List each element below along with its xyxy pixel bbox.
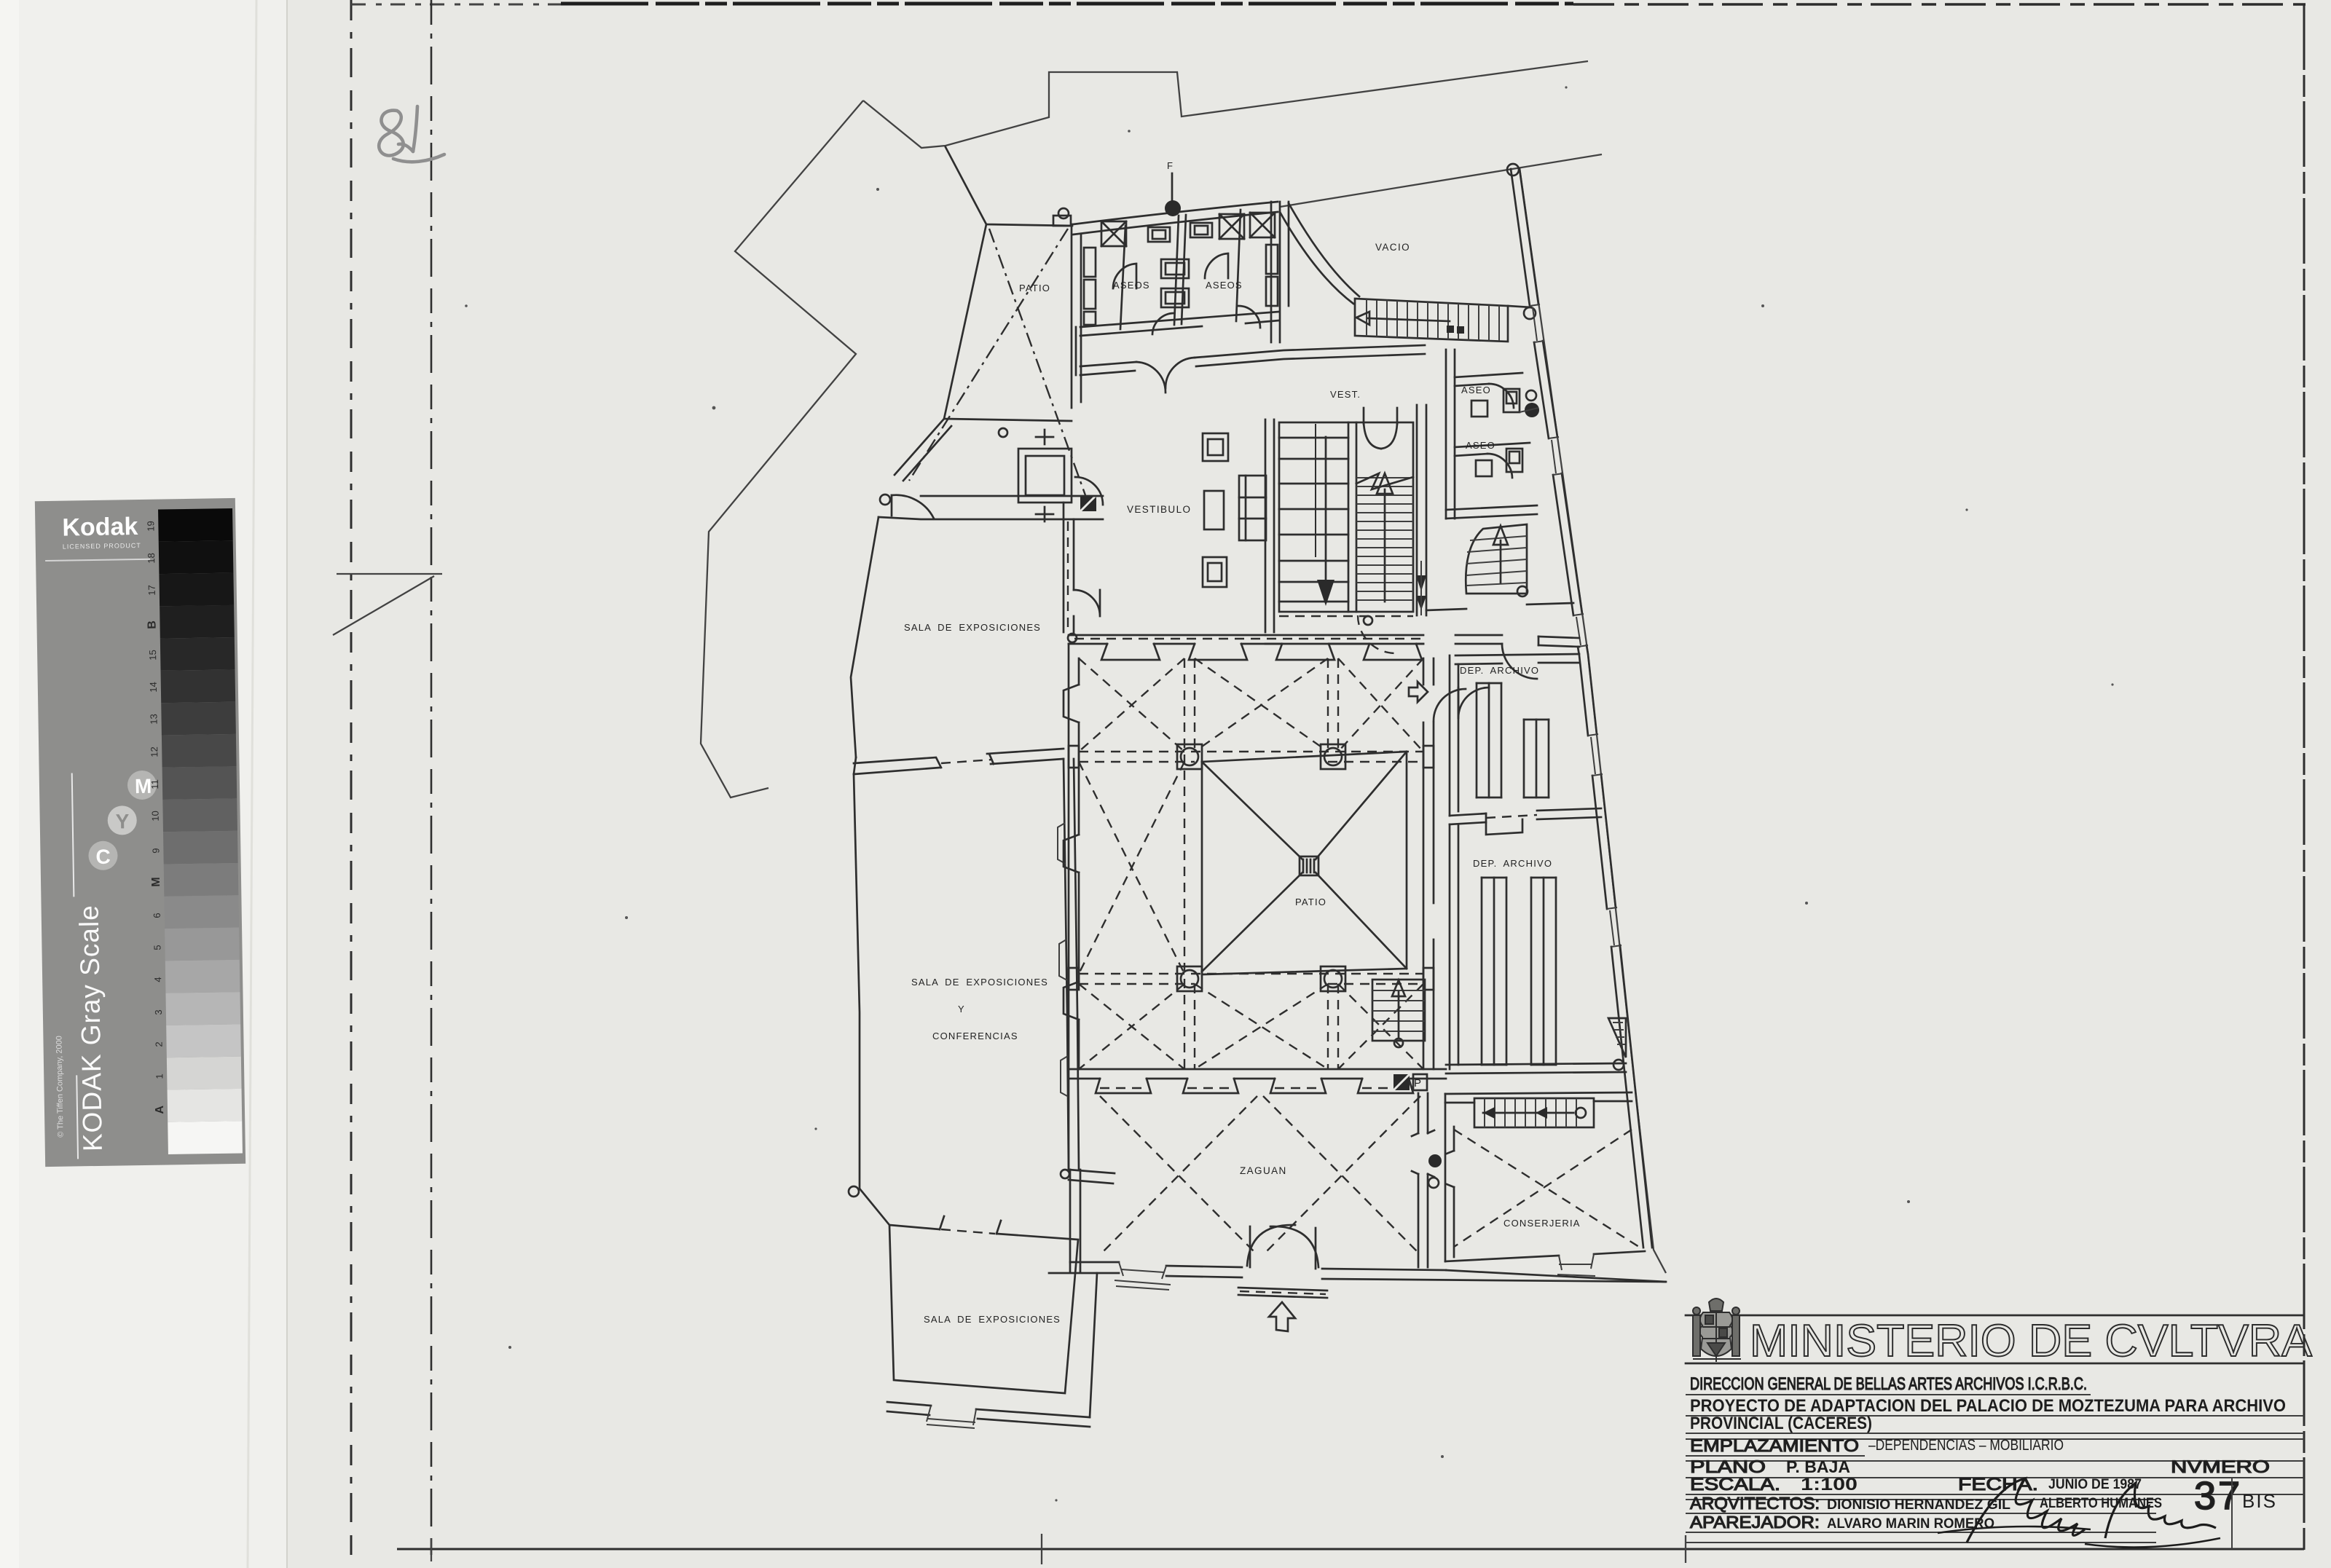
svg-text:2: 2 bbox=[154, 1041, 165, 1047]
svg-text:PLANO: PLANO bbox=[1690, 1457, 1766, 1477]
svg-text:SALA DE EXPOSICIONES: SALA DE EXPOSICIONES bbox=[911, 977, 1048, 988]
svg-text:Kodak: Kodak bbox=[62, 513, 138, 542]
svg-text:PATIO: PATIO bbox=[1019, 283, 1050, 293]
svg-text:A: A bbox=[154, 1105, 166, 1114]
svg-text:CONFERENCIAS: CONFERENCIAS bbox=[932, 1031, 1018, 1041]
svg-text:11: 11 bbox=[149, 779, 160, 789]
svg-text:37: 37 bbox=[2194, 1474, 2242, 1518]
svg-text:C: C bbox=[95, 846, 111, 868]
svg-text:CONSERJERIA: CONSERJERIA bbox=[1503, 1218, 1581, 1229]
svg-text:13: 13 bbox=[148, 714, 159, 725]
svg-text:18: 18 bbox=[146, 553, 157, 564]
svg-text:B: B bbox=[146, 620, 158, 629]
svg-text:Y: Y bbox=[116, 810, 130, 832]
svg-text:VESTIBULO: VESTIBULO bbox=[1127, 504, 1191, 515]
svg-text:–DEPENDENCIAS – MOBILIARIO: –DEPENDENCIAS – MOBILIARIO bbox=[1868, 1437, 2064, 1454]
svg-text:BIS: BIS bbox=[2242, 1490, 2277, 1512]
svg-text:DEP. ARCHIVO: DEP. ARCHIVO bbox=[1460, 665, 1539, 676]
svg-text:5: 5 bbox=[152, 945, 162, 950]
svg-text:F: F bbox=[1167, 160, 1174, 171]
svg-text:DIRECCION GENERAL DE BELLAS AR: DIRECCION GENERAL DE BELLAS ARTES ARCHIV… bbox=[1690, 1374, 2087, 1394]
svg-text:MINISTERIO DE CVLTVRA: MINISTERIO DE CVLTVRA bbox=[1750, 1316, 2313, 1366]
svg-text:EMPLAZAMIENTO: EMPLAZAMIENTO bbox=[1690, 1436, 1859, 1456]
svg-text:4: 4 bbox=[152, 977, 163, 982]
svg-text:3: 3 bbox=[153, 1009, 164, 1015]
svg-text:10: 10 bbox=[150, 811, 161, 822]
svg-text:ESCALA.: ESCALA. bbox=[1690, 1475, 1780, 1494]
svg-text:M: M bbox=[150, 877, 162, 887]
svg-text:1: 1 bbox=[154, 1073, 165, 1079]
svg-text:PROVINCIAL (CACERES): PROVINCIAL (CACERES) bbox=[1690, 1414, 1872, 1433]
svg-text:DEP. ARCHIVO: DEP. ARCHIVO bbox=[1473, 858, 1552, 869]
svg-text:APAREJADOR:: APAREJADOR: bbox=[1690, 1513, 1820, 1532]
svg-text:PATIO: PATIO bbox=[1295, 897, 1326, 907]
svg-text:17: 17 bbox=[146, 585, 157, 596]
svg-text:ASEOS: ASEOS bbox=[1113, 280, 1150, 291]
svg-text:VEST.: VEST. bbox=[1330, 389, 1361, 400]
svg-text:P. BAJA: P. BAJA bbox=[1786, 1457, 1850, 1476]
svg-text:ASEOS: ASEOS bbox=[1206, 280, 1243, 291]
svg-text:ASEO: ASEO bbox=[1461, 385, 1491, 395]
svg-text:PROYECTO DE ADAPTACION DEL PAL: PROYECTO DE ADAPTACION DEL PALACIO DE MO… bbox=[1690, 1396, 2286, 1416]
svg-text:6: 6 bbox=[152, 913, 162, 918]
svg-text:ZAGUAN: ZAGUAN bbox=[1240, 1165, 1287, 1176]
svg-text:1:100: 1:100 bbox=[1801, 1475, 1858, 1494]
svg-text:9: 9 bbox=[150, 848, 161, 853]
svg-text:19: 19 bbox=[145, 521, 156, 532]
svg-text:12: 12 bbox=[149, 746, 160, 757]
svg-text:P: P bbox=[1414, 1077, 1421, 1090]
svg-text:LICENSED PRODUCT: LICENSED PRODUCT bbox=[63, 542, 141, 551]
svg-text:DIONISIO HERNANDEZ GIL: DIONISIO HERNANDEZ GIL bbox=[1827, 1497, 2010, 1513]
svg-text:14: 14 bbox=[148, 682, 159, 693]
svg-text:SALA DE EXPOSICIONES: SALA DE EXPOSICIONES bbox=[924, 1314, 1061, 1325]
svg-text:15: 15 bbox=[147, 650, 158, 661]
svg-text:Y: Y bbox=[958, 1004, 965, 1015]
svg-text:© The Tiffen Company, 2000: © The Tiffen Company, 2000 bbox=[55, 1036, 65, 1138]
svg-text:SALA DE EXPOSICIONES: SALA DE EXPOSICIONES bbox=[904, 622, 1041, 633]
svg-text:KODAK Gray Scale: KODAK Gray Scale bbox=[74, 905, 108, 1151]
svg-text:ARQVITECTOS:: ARQVITECTOS: bbox=[1690, 1494, 1820, 1513]
svg-text:ASEO: ASEO bbox=[1466, 440, 1495, 451]
svg-text:VACIO: VACIO bbox=[1375, 242, 1410, 253]
